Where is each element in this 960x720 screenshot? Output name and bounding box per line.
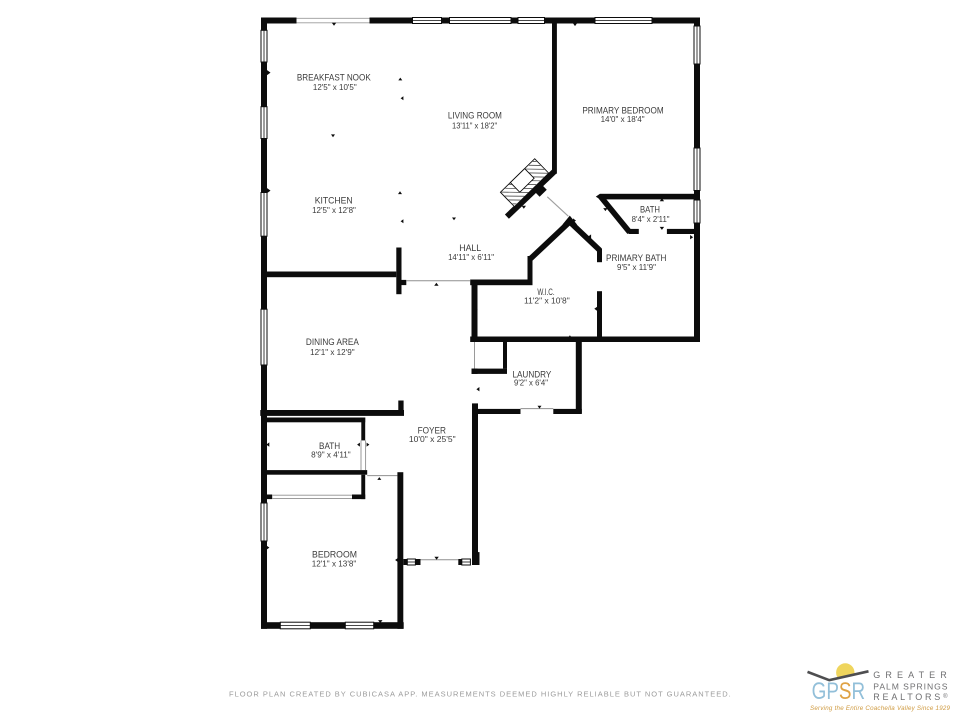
svg-text:14'0" x 18'4": 14'0" x 18'4" [601,114,645,124]
svg-text:14'11" x 6'11": 14'11" x 6'11" [448,252,494,262]
svg-text:13'11" x 18'2": 13'11" x 18'2" [452,120,497,130]
svg-text:KITCHEN: KITCHEN [315,196,353,206]
svg-text:9'5" x 11'9": 9'5" x 11'9" [617,262,656,272]
svg-text:LIVING ROOM: LIVING ROOM [448,111,502,121]
svg-text:Serving the Entire Coachella V: Serving the Entire Coachella Valley Sinc… [810,705,951,712]
svg-text:10'0" x 25'5": 10'0" x 25'5" [409,434,456,444]
svg-text:11'2" x 10'8": 11'2" x 10'8" [524,296,570,306]
svg-text:12'5" x 12'8": 12'5" x 12'8" [312,205,356,215]
svg-text:PALM SPRINGS: PALM SPRINGS [873,681,947,691]
svg-text:8'9" x 4'11": 8'9" x 4'11" [311,450,351,460]
svg-text:9'2" x 6'4": 9'2" x 6'4" [514,377,548,387]
svg-text:8'4" x 2'11": 8'4" x 2'11" [632,214,670,224]
svg-text:BREAKFAST NOOK: BREAKFAST NOOK [297,72,372,82]
svg-text:12'1" x 13'8": 12'1" x 13'8" [312,559,357,569]
svg-text:12'5" x 10'5": 12'5" x 10'5" [313,82,357,92]
svg-text:12'1" x 12'9": 12'1" x 12'9" [310,347,355,357]
svg-text:DINING AREA: DINING AREA [306,337,360,347]
svg-text:FLOOR PLAN CREATED BY CUBICASA: FLOOR PLAN CREATED BY CUBICASA APP. MEAS… [229,690,731,699]
svg-text:GPSR: GPSR [812,678,866,705]
svg-text:REALTORS®: REALTORS® [873,692,948,702]
